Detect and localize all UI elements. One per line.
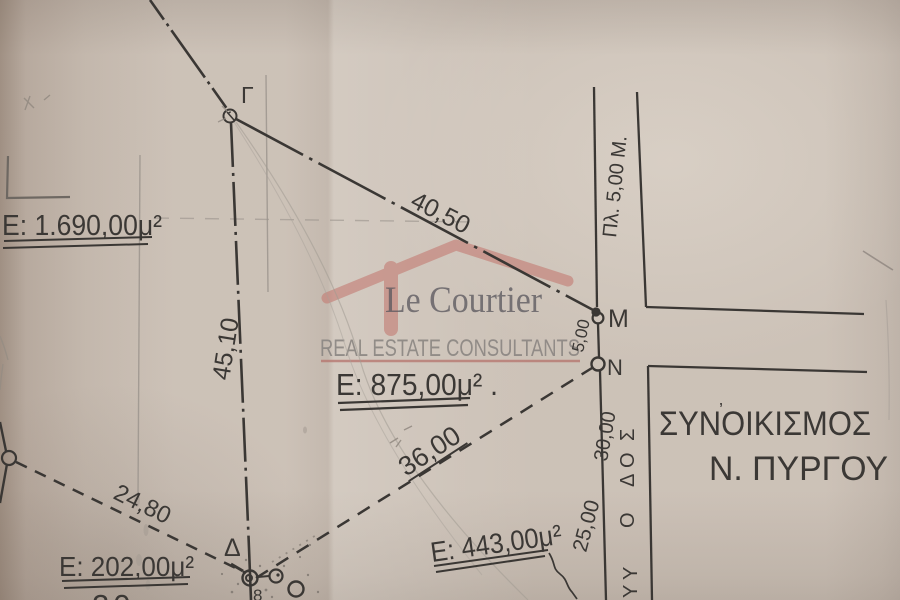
- svg-text:Δ: Δ: [224, 534, 241, 562]
- svg-text:Ο: Ο: [617, 512, 639, 528]
- svg-text:25,00: 25,00: [569, 498, 605, 555]
- svg-text:Γ: Γ: [241, 82, 254, 108]
- svg-text:24,80: 24,80: [109, 479, 175, 530]
- svg-text:ΣΥΝΟΙΚΙΣΜΟΣ: ΣΥΝΟΙΚΙΣΜΟΣ: [659, 405, 871, 443]
- svg-text:Le Courtier: Le Courtier: [385, 280, 542, 321]
- svg-text:’: ’: [719, 400, 723, 420]
- svg-text:Υ: Υ: [620, 585, 642, 598]
- svg-text:Υ: Υ: [620, 567, 642, 580]
- svg-text:8: 8: [253, 586, 262, 600]
- svg-text:Δ: Δ: [617, 474, 639, 487]
- svg-text:M: M: [608, 305, 629, 333]
- svg-text:20: 20: [92, 588, 134, 600]
- svg-text:45,10: 45,10: [207, 316, 244, 382]
- svg-text:Πλ. 5,00 Μ.: Πλ. 5,00 Μ.: [599, 135, 632, 239]
- svg-text:Ν. ΠΥΡΓΟΥ: Ν. ΠΥΡΓΟΥ: [709, 450, 888, 488]
- svg-text:40,50: 40,50: [406, 186, 474, 239]
- svg-text:5,00: 5,00: [568, 318, 593, 354]
- svg-text:E: 443,00μ²: E: 443,00μ²: [429, 519, 564, 568]
- svg-text:E: 875,00μ² .: E: 875,00μ² .: [336, 367, 498, 402]
- svg-text:Ο: Ο: [617, 452, 639, 468]
- svg-text:N: N: [607, 355, 623, 380]
- svg-text:Σ: Σ: [617, 429, 639, 441]
